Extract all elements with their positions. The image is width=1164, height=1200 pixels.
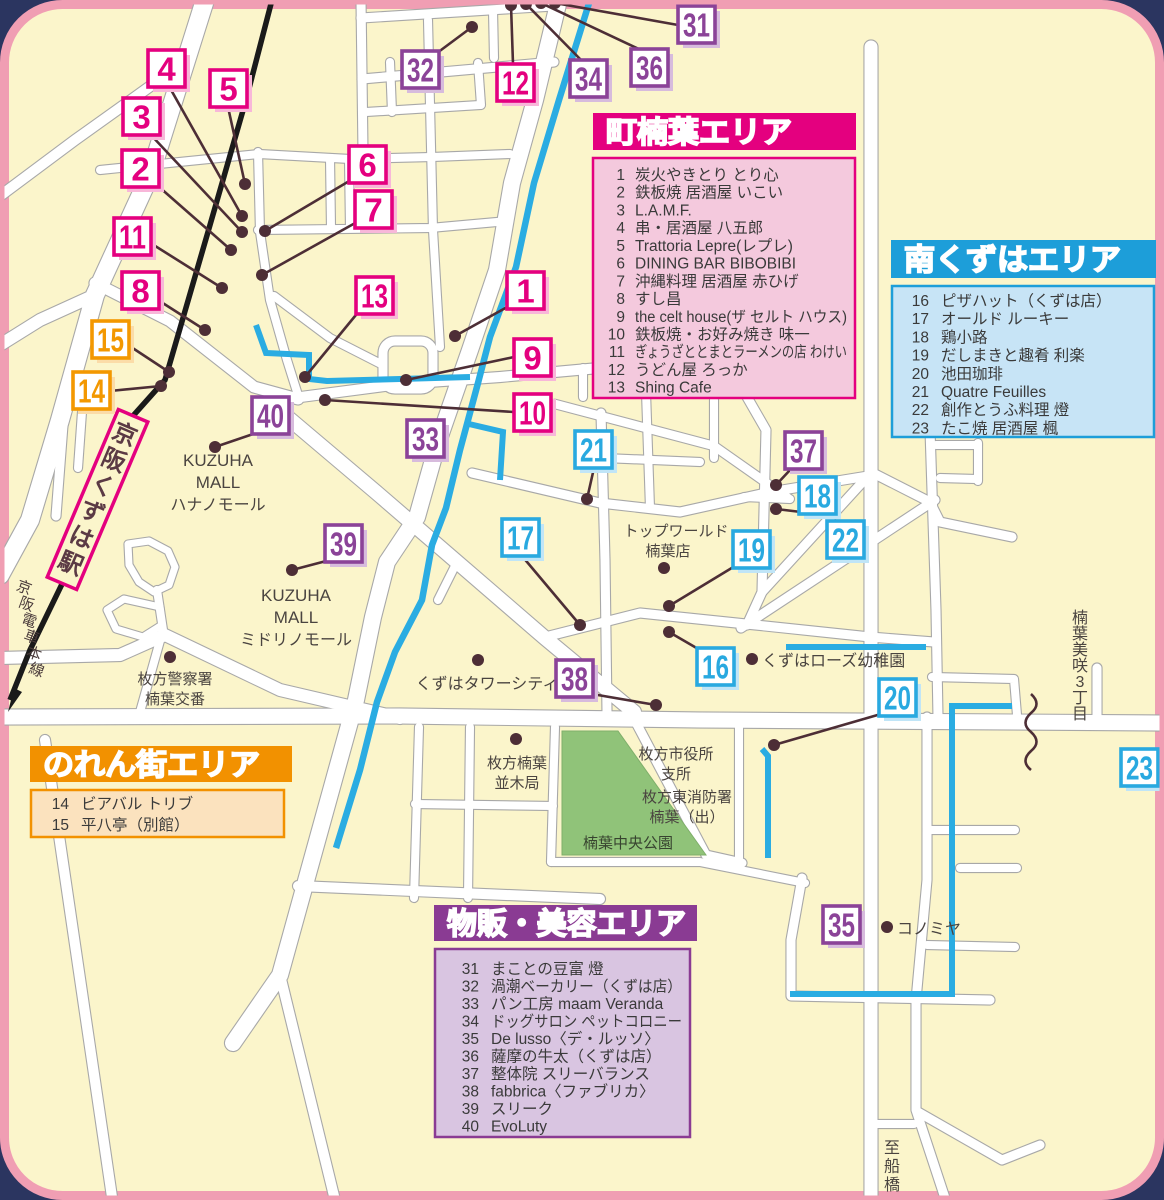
svg-text:うどん屋 ろっか: うどん屋 ろっか [635, 361, 748, 379]
svg-text:1: 1 [616, 167, 625, 184]
svg-text:MALL: MALL [196, 473, 240, 492]
svg-text:37: 37 [462, 1066, 479, 1083]
svg-text:整体院 スリーバランス: 整体院 スリーバランス [491, 1064, 650, 1083]
svg-text:10: 10 [608, 327, 626, 344]
svg-text:L.A.M.F.: L.A.M.F. [635, 202, 692, 219]
svg-text:まことの豆富 燈: まことの豆富 燈 [491, 960, 604, 978]
svg-text:6: 6 [358, 147, 376, 184]
svg-text:Quatre Feuilles: Quatre Feuilles [941, 384, 1046, 401]
svg-text:4: 4 [157, 51, 176, 88]
svg-text:コノミヤ: コノミヤ [897, 921, 961, 938]
svg-text:池田珈琲: 池田珈琲 [941, 365, 1003, 383]
svg-text:目: 目 [1072, 706, 1088, 723]
svg-text:3: 3 [132, 99, 150, 136]
svg-text:葉: 葉 [1072, 625, 1088, 643]
svg-text:38: 38 [462, 1084, 479, 1101]
svg-text:船: 船 [884, 1158, 900, 1176]
svg-text:ビアバル トリブ: ビアバル トリブ [81, 794, 193, 813]
svg-text:2: 2 [131, 151, 149, 188]
svg-text:沖縄料理 居酒屋 赤ひげ: 沖縄料理 居酒屋 赤ひげ [635, 272, 799, 290]
svg-text:40: 40 [462, 1119, 480, 1136]
svg-text:枚方警察署: 枚方警察署 [137, 670, 212, 688]
svg-text:鉄板焼・お好み焼き 味一: 鉄板焼・お好み焼き 味一 [635, 326, 810, 344]
svg-text:咲: 咲 [1072, 657, 1088, 675]
svg-text:11: 11 [609, 344, 625, 361]
svg-text:37: 37 [790, 433, 817, 470]
svg-text:くずはローズ幼稚園: くずはローズ幼稚園 [762, 652, 905, 670]
svg-text:14: 14 [78, 373, 105, 410]
svg-text:13: 13 [608, 380, 625, 397]
svg-text:Trattoria Lepre(レプレ): Trattoria Lepre(レプレ) [635, 237, 793, 255]
svg-text:15: 15 [52, 817, 69, 834]
svg-text:4: 4 [616, 220, 625, 237]
svg-text:33: 33 [412, 421, 439, 458]
svg-text:3: 3 [616, 202, 625, 219]
svg-text:fabbrica〈ファブリカ〉: fabbrica〈ファブリカ〉 [491, 1082, 655, 1101]
svg-text:トップワールド: トップワールド [623, 523, 728, 540]
svg-text:物販・美容エリア: 物販・美容エリア [447, 907, 686, 941]
svg-text:16: 16 [912, 293, 929, 310]
svg-text:丁: 丁 [1072, 690, 1088, 707]
svg-text:23: 23 [912, 420, 929, 437]
svg-text:南くずはエリア: 南くずはエリア [904, 244, 1121, 277]
svg-text:平八亭（別館）: 平八亭（別館） [81, 816, 190, 834]
svg-text:楠: 楠 [1072, 609, 1088, 627]
svg-text:枚方楠葉: 枚方楠葉 [487, 755, 547, 772]
svg-text:支所: 支所 [661, 766, 691, 783]
svg-text:並木局: 並木局 [494, 775, 539, 792]
svg-text:5: 5 [616, 238, 625, 255]
svg-text:23: 23 [1126, 750, 1153, 787]
svg-text:33: 33 [462, 996, 479, 1013]
svg-text:美: 美 [1072, 641, 1088, 659]
svg-text:38: 38 [561, 661, 588, 698]
svg-text:1: 1 [516, 273, 534, 310]
svg-text:15: 15 [97, 322, 124, 359]
svg-text:8: 8 [616, 291, 625, 308]
svg-text:18: 18 [912, 329, 929, 346]
svg-text:楠葉中央公園: 楠葉中央公園 [583, 835, 673, 852]
svg-text:35: 35 [828, 907, 855, 944]
svg-text:34: 34 [575, 61, 602, 98]
svg-text:39: 39 [462, 1101, 479, 1118]
svg-text:たこ焼 居酒屋 楓: たこ焼 居酒屋 楓 [941, 419, 1059, 437]
svg-text:9: 9 [616, 309, 625, 326]
svg-text:枚方市役所: 枚方市役所 [638, 746, 713, 763]
svg-text:40: 40 [257, 398, 284, 435]
svg-text:枚方東消防署: 枚方東消防署 [642, 789, 732, 806]
svg-text:鶏小路: 鶏小路 [941, 328, 988, 346]
svg-text:楠葉店: 楠葉店 [645, 543, 690, 560]
svg-text:8: 8 [131, 273, 149, 310]
svg-text:のれん街エリア: のれん街エリア [43, 749, 260, 782]
svg-text:創作とうふ料理 燈: 創作とうふ料理 燈 [941, 401, 1070, 419]
svg-text:6: 6 [616, 256, 625, 273]
svg-text:14: 14 [52, 796, 70, 813]
svg-text:ピザハット（くずは店）: ピザハット（くずは店） [941, 292, 1112, 310]
svg-text:7: 7 [616, 273, 625, 290]
svg-text:17: 17 [912, 311, 929, 328]
svg-text:Shing Cafe: Shing Cafe [635, 380, 712, 397]
svg-text:11: 11 [119, 219, 146, 256]
svg-text:すし昌: すし昌 [635, 290, 682, 308]
svg-text:ドッグサロン ペットコロニー: ドッグサロン ペットコロニー [491, 1013, 682, 1031]
svg-text:渦潮ベーカリー（くずは店）: 渦潮ベーカリー（くずは店） [491, 978, 682, 996]
svg-text:9: 9 [523, 340, 541, 377]
svg-text:ミドリノモール: ミドリノモール [240, 632, 352, 649]
svg-text:21: 21 [580, 432, 607, 469]
svg-text:オールド ルーキー: オールド ルーキー [941, 311, 1069, 328]
svg-text:22: 22 [832, 522, 859, 559]
svg-text:薩摩の牛太（くずは店）: 薩摩の牛太（くずは店） [491, 1048, 662, 1066]
svg-text:串・居酒屋 八五郎: 串・居酒屋 八五郎 [635, 219, 763, 237]
svg-text:12: 12 [502, 65, 529, 102]
svg-text:De lusso〈デ・ルッソ〉: De lusso〈デ・ルッソ〉 [491, 1029, 660, 1048]
svg-text:35: 35 [462, 1031, 479, 1048]
svg-text:19: 19 [738, 532, 765, 569]
svg-text:32: 32 [462, 979, 479, 996]
svg-text:だしまきと趣肴 利楽: だしまきと趣肴 利楽 [941, 347, 1085, 365]
svg-text:炭火やきとり とり心: 炭火やきとり とり心 [635, 166, 779, 184]
svg-text:パン工房 maam Veranda: パン工房 maam Veranda [491, 995, 664, 1013]
svg-text:橋: 橋 [884, 1176, 900, 1194]
svg-text:EvoLuty: EvoLuty [491, 1119, 547, 1136]
svg-text:22: 22 [912, 402, 929, 419]
svg-text:13: 13 [361, 278, 388, 315]
svg-text:スリーク: スリーク [491, 1100, 553, 1118]
svg-text:KUZUHA: KUZUHA [183, 451, 254, 470]
svg-text:至: 至 [884, 1140, 900, 1157]
svg-text:20: 20 [912, 366, 930, 383]
svg-text:10: 10 [519, 395, 546, 432]
svg-text:くずはタワーシティ: くずはタワーシティ [416, 675, 559, 693]
svg-text:町楠葉エリア: 町楠葉エリア [606, 117, 792, 150]
svg-text:鉄板焼 居酒屋 いこい: 鉄板焼 居酒屋 いこい [635, 184, 783, 202]
svg-text:34: 34 [462, 1014, 480, 1031]
svg-text:19: 19 [912, 348, 929, 365]
svg-text:20: 20 [884, 680, 911, 717]
svg-text:the celt house(ザ セルト ハウス): the celt house(ザ セルト ハウス) [635, 308, 847, 326]
svg-text:17: 17 [507, 520, 534, 557]
svg-text:32: 32 [407, 52, 434, 89]
svg-text:3: 3 [1076, 674, 1085, 691]
svg-text:16: 16 [702, 649, 729, 686]
svg-text:36: 36 [636, 50, 663, 87]
svg-text:39: 39 [330, 526, 357, 563]
svg-text:18: 18 [804, 478, 831, 515]
svg-text:楠葉（出）: 楠葉（出） [649, 809, 724, 826]
svg-text:ハナノモール: ハナノモール [170, 497, 265, 514]
svg-text:ぎょうざととまとラーメンの店 わけい: ぎょうざととまとラーメンの店 わけい [635, 342, 847, 361]
svg-text:KUZUHA: KUZUHA [261, 586, 332, 605]
svg-text:5: 5 [219, 71, 237, 108]
svg-text:21: 21 [912, 384, 929, 401]
svg-text:7: 7 [364, 192, 382, 229]
svg-text:31: 31 [462, 961, 479, 978]
svg-text:楠葉交番: 楠葉交番 [145, 690, 205, 708]
svg-text:DINING BAR BIBOBIBI: DINING BAR BIBOBIBI [635, 256, 796, 273]
svg-text:12: 12 [608, 362, 625, 379]
svg-text:36: 36 [462, 1049, 479, 1066]
svg-text:31: 31 [683, 7, 710, 44]
svg-text:MALL: MALL [274, 608, 318, 627]
svg-text:2: 2 [616, 185, 625, 202]
